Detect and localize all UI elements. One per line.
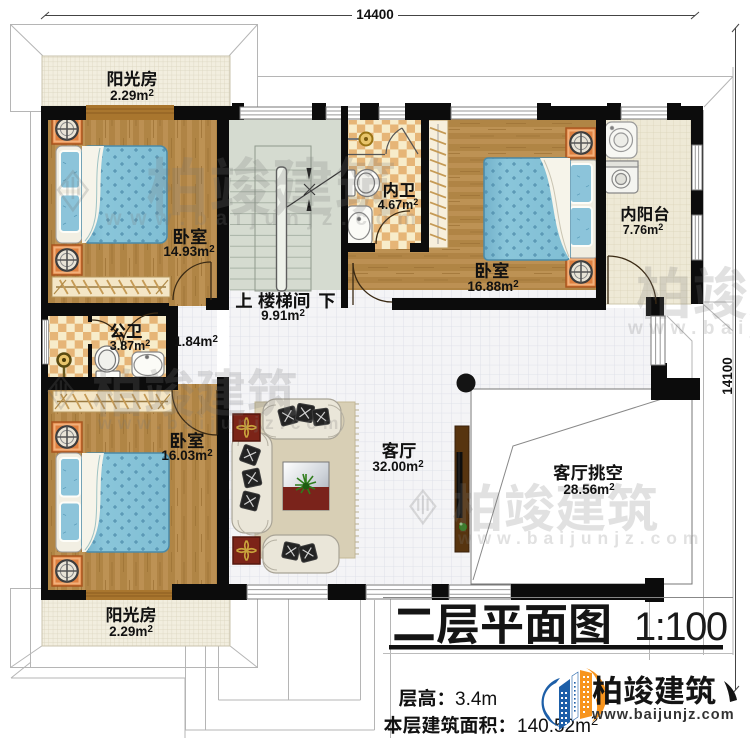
- svg-text:14.93m2: 14.93m2: [163, 244, 215, 259]
- svg-text:28.56m2: 28.56m2: [563, 482, 615, 497]
- svg-text:1.84m2: 1.84m2: [174, 334, 218, 349]
- svg-text:www.baijunjz.com: www.baijunjz.com: [104, 206, 425, 230]
- svg-text:www.baijunjz.com: www.baijunjz.com: [627, 318, 750, 339]
- svg-text:16.03m2: 16.03m2: [161, 448, 213, 463]
- svg-text:2.29m2: 2.29m2: [109, 624, 153, 639]
- svg-text:14100: 14100: [720, 357, 735, 395]
- svg-text:2.29m2: 2.29m2: [110, 88, 154, 103]
- svg-text:1:100: 1:100: [634, 605, 727, 649]
- svg-text:www.baijunjz.com: www.baijunjz.com: [591, 707, 735, 723]
- svg-text:9.91m2: 9.91m2: [261, 308, 305, 323]
- svg-text:7.76m2: 7.76m2: [623, 222, 663, 237]
- svg-text:3.87m2: 3.87m2: [110, 338, 150, 353]
- svg-text:32.00m2: 32.00m2: [372, 459, 424, 474]
- svg-text:16.88m2: 16.88m2: [467, 279, 519, 294]
- svg-text:3.4m: 3.4m: [455, 689, 497, 710]
- svg-text:4.67m2: 4.67m2: [378, 197, 418, 212]
- svg-text:www.baijunjz.com: www.baijunjz.com: [457, 528, 704, 548]
- svg-text:www.baijunjz.com: www.baijunjz.com: [97, 413, 344, 433]
- svg-text:14400: 14400: [356, 7, 394, 22]
